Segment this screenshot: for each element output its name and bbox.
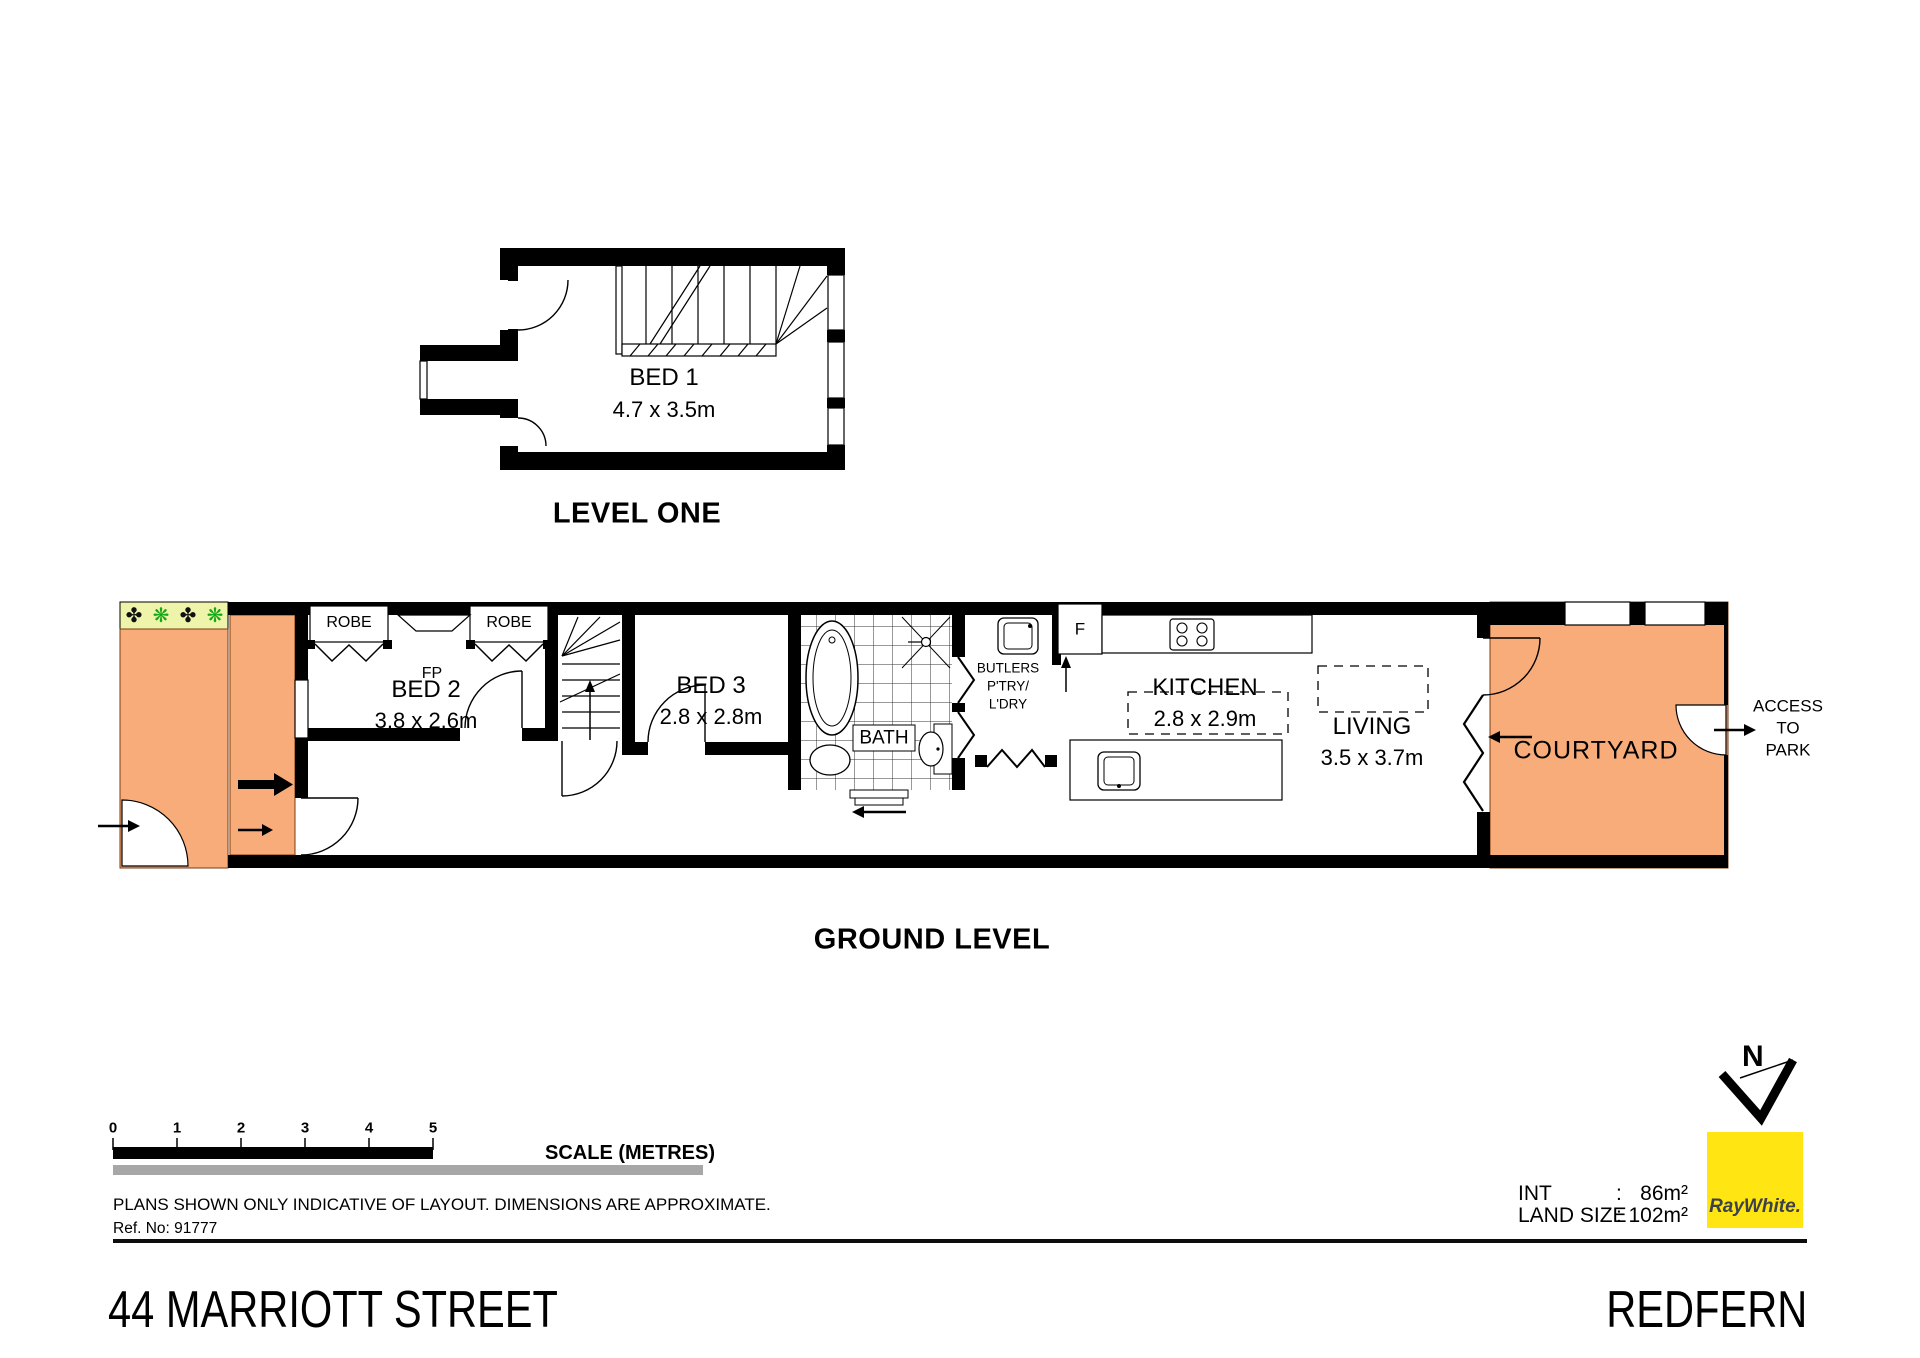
- robe-left-label: ROBE: [326, 615, 371, 631]
- window-icon: [828, 275, 844, 445]
- scale-tick-4: 4: [365, 1121, 373, 1136]
- fence-opening: [1645, 602, 1705, 625]
- int-area-label: INT: [1518, 1182, 1552, 1206]
- bathroom: [801, 615, 952, 818]
- ground-level-title: GROUND LEVEL: [814, 926, 1050, 955]
- bed3-dims: 2.8 x 2.8m: [660, 706, 763, 728]
- suburb: REDFERN: [1606, 1280, 1807, 1340]
- grey-divider-bar: [113, 1165, 703, 1175]
- fridge-label: F: [1075, 621, 1085, 638]
- floor-plan-page: BED 1 4.7 x 3.5m LEVEL ONE ✤ ❋ ✤ ❋ ROBE …: [0, 0, 1920, 1358]
- plant-icon: ❋: [207, 606, 224, 626]
- living-dims: 3.5 x 3.7m: [1321, 747, 1424, 769]
- living-label: LIVING: [1333, 715, 1412, 739]
- wall: [228, 602, 1490, 615]
- reference-number: Ref. No: 91777: [113, 1220, 217, 1238]
- disclaimer-text: PLANS SHOWN ONLY INDICATIVE OF LAYOUT. D…: [113, 1195, 771, 1215]
- window-icon: [295, 680, 308, 738]
- floor-plan-drawing: [0, 0, 1920, 1358]
- toilet-icon: [810, 745, 850, 775]
- land-size-value: 102m²: [1600, 1204, 1688, 1228]
- scale-tick-0: 0: [109, 1121, 117, 1136]
- robe-right-label: ROBE: [486, 615, 531, 631]
- access-label-line1: ACCESS: [1753, 698, 1823, 715]
- access-label-line2: TO: [1776, 720, 1799, 737]
- courtyard-label: COURTYARD: [1513, 739, 1678, 764]
- butlers-label-line3: L'DRY: [989, 697, 1027, 711]
- scale-title: SCALE (METRES): [545, 1142, 715, 1165]
- level-one-plan: [420, 248, 845, 470]
- scale-tick-1: 1: [173, 1121, 181, 1136]
- wall: [500, 452, 845, 470]
- ground-level-plan: [98, 602, 1756, 868]
- access-label-line3: PARK: [1765, 742, 1810, 759]
- verandah: [230, 615, 295, 855]
- kitchen-dims: 2.8 x 2.9m: [1151, 708, 1260, 730]
- footer-divider: [113, 1239, 1807, 1243]
- butlers-label-line2: P'TRY/: [987, 679, 1029, 693]
- plant-icon: ✤: [180, 606, 197, 626]
- scale-tick-2: 2: [237, 1121, 245, 1136]
- bathtub-icon: [806, 621, 858, 735]
- laundry-sink-icon: [998, 618, 1038, 654]
- plant-icon: ❋: [153, 606, 170, 626]
- cooktop-icon: [1170, 619, 1214, 650]
- kitchen-island: [1070, 740, 1282, 800]
- raywhite-logo-text: RayWhite.: [1707, 1196, 1803, 1218]
- wall: [228, 855, 1490, 868]
- raywhite-logo: RayWhite.: [1707, 1132, 1803, 1228]
- closet-nook: [420, 345, 518, 415]
- wall: [500, 248, 845, 266]
- bath-label: BATH: [859, 729, 908, 748]
- level-one-title: LEVEL ONE: [553, 500, 721, 529]
- window-icon: [420, 361, 427, 399]
- scale-tick-3: 3: [301, 1121, 309, 1136]
- fence-opening: [1565, 602, 1630, 625]
- bed1-dims: 4.7 x 3.5m: [613, 399, 716, 421]
- kitchen-label: KITCHEN: [1152, 676, 1257, 700]
- step: [850, 790, 908, 798]
- bed3-label: BED 3: [676, 674, 745, 698]
- bed2-dims: 3.8 x 2.6m: [375, 710, 478, 732]
- bed1-label: BED 1: [629, 366, 698, 390]
- stairs-icon: [616, 266, 827, 356]
- int-area-value: 86m²: [1600, 1182, 1688, 1206]
- north-label: N: [1742, 1040, 1764, 1074]
- butlers-label-line1: BUTLERS: [977, 661, 1039, 675]
- scale-tick-5: 5: [429, 1121, 437, 1136]
- street-address: 44 MARRIOTT STREET: [108, 1280, 558, 1340]
- bed2-label: BED 2: [391, 678, 460, 702]
- plant-icon: ✤: [126, 606, 143, 626]
